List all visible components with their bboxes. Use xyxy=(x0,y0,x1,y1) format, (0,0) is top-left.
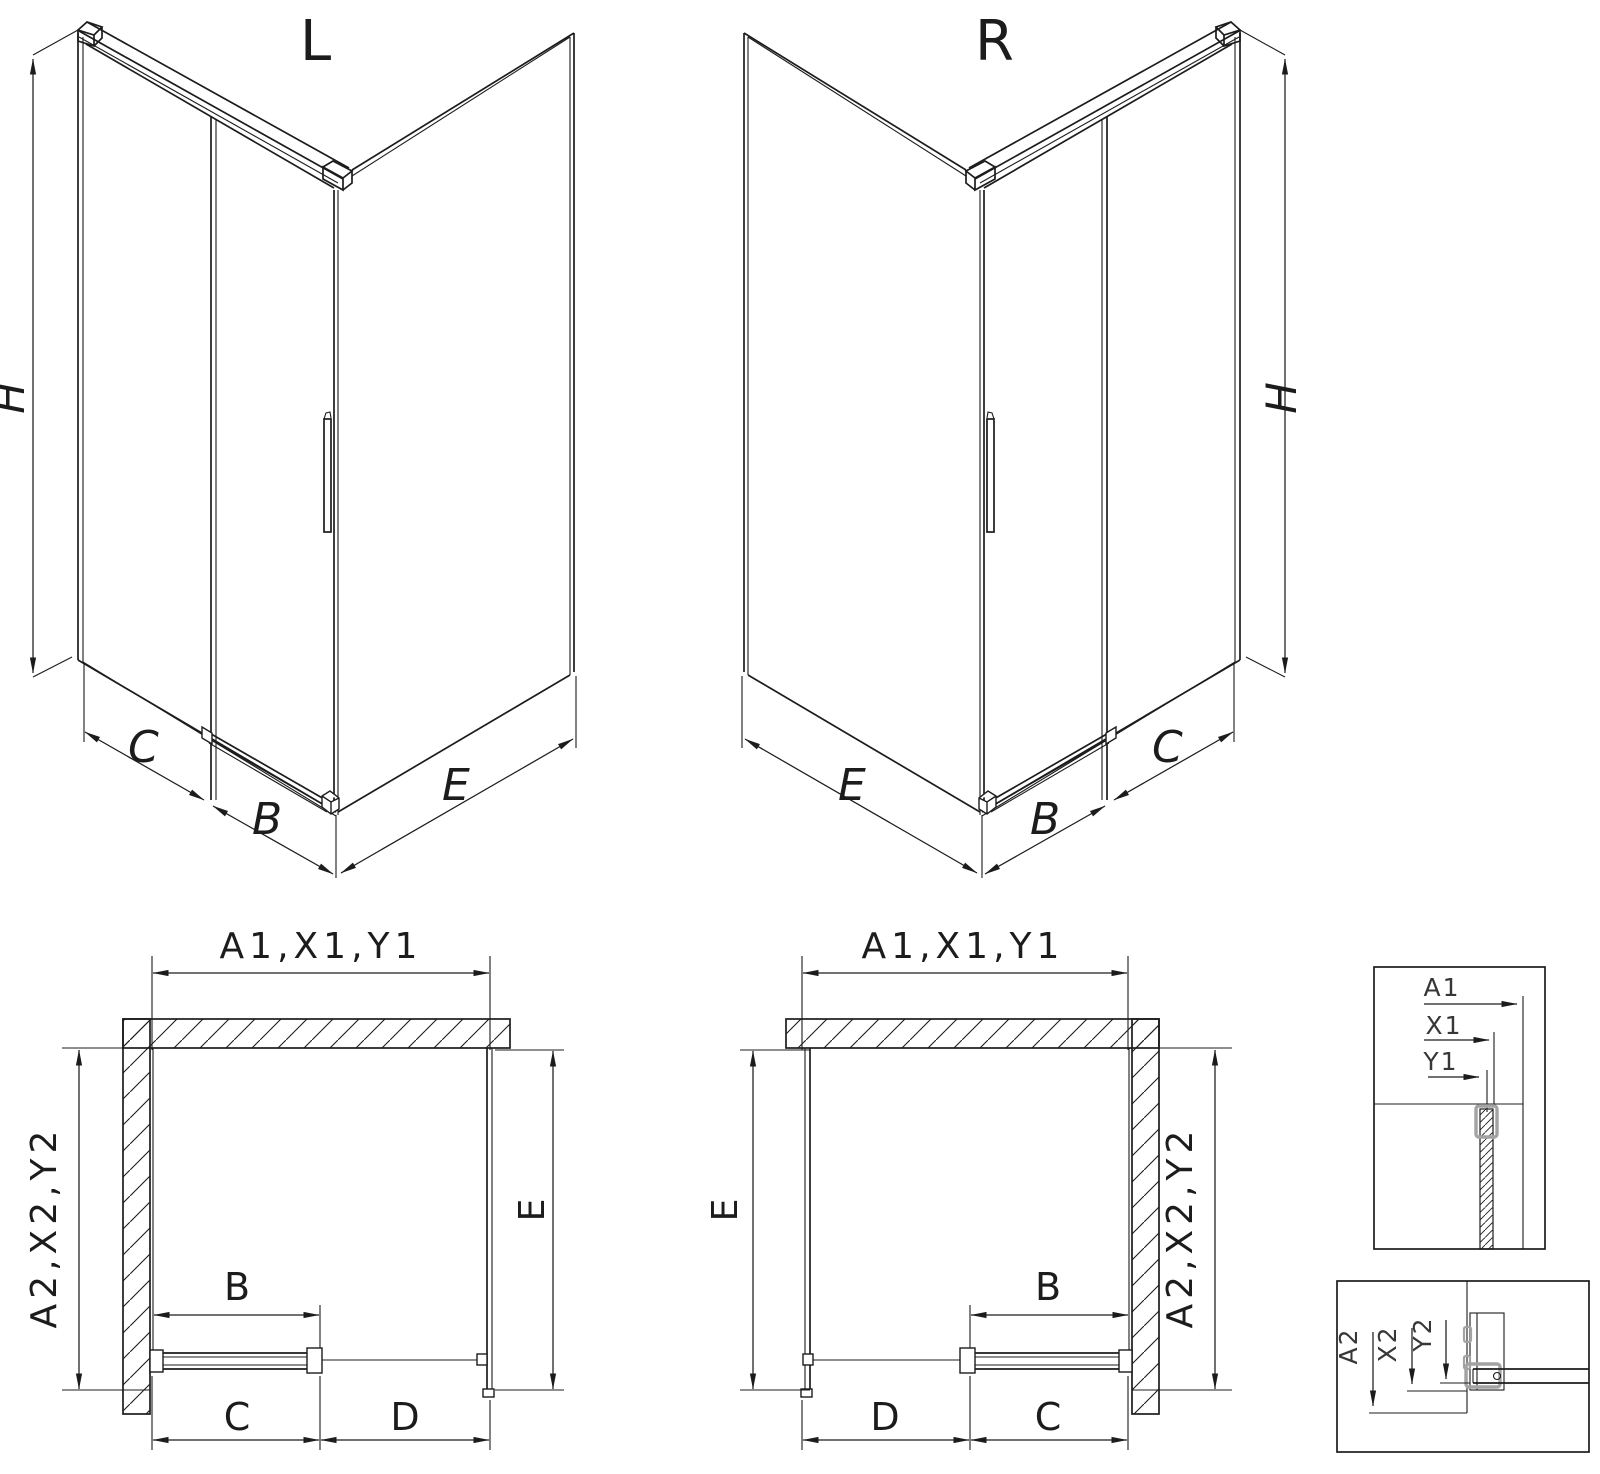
plan-left-width-dim: A1,X1,Y1 xyxy=(220,926,423,967)
side-dim-label-right: E xyxy=(838,760,866,811)
plan-right-side-wall xyxy=(1132,1019,1159,1414)
plan-left-side-wall xyxy=(123,1019,150,1414)
side-dim-label-left: E xyxy=(442,760,470,811)
diagram-canvas: L H C B E xyxy=(0,0,1600,1474)
plan-right-fixed-dim: C xyxy=(1035,1395,1062,1439)
plan-left-fixed-dim: C xyxy=(224,1395,251,1439)
height-dim-label-left: H xyxy=(0,382,34,414)
fixed-dim-label-right: C xyxy=(1152,722,1183,773)
detail-y1-label: Y1 xyxy=(1422,1047,1458,1076)
plan-left-top-wall xyxy=(123,1019,510,1048)
door-handle xyxy=(324,412,331,532)
plan-right-side-dim: E xyxy=(705,1199,746,1222)
plan-left-side-dim: E xyxy=(512,1199,553,1222)
iso-right-geometry xyxy=(742,22,1285,878)
plan-right-door-dim: B xyxy=(1035,1265,1061,1309)
plan-left-bottom-rail xyxy=(150,1348,487,1373)
variant-label-left: L xyxy=(300,9,331,74)
detail-x1-label: X1 xyxy=(1425,1011,1462,1040)
iso-left-geometry xyxy=(33,22,576,878)
door-handle xyxy=(987,412,994,532)
plan-right-figure: A1,X1,Y1 E A2,X2,Y2 B xyxy=(705,926,1232,1450)
height-dim-label-right: H xyxy=(1257,382,1306,414)
plan-left-figure: A1,X1,Y1 E A2,X2,Y2 B xyxy=(24,926,564,1450)
plan-right-bottom-rail xyxy=(803,1348,1132,1373)
door-dim-label-right: B xyxy=(1030,794,1060,845)
iso-left-figure: L H C B E xyxy=(0,9,576,878)
detail-a2-label: A2 xyxy=(1334,1327,1363,1364)
detail-width-figure: A1 X1 Y1 xyxy=(1374,967,1545,1249)
door-dim-label-left: B xyxy=(252,794,282,845)
plan-left-door-dim: B xyxy=(224,1265,250,1309)
plan-right-width-dim: A1,X1,Y1 xyxy=(862,926,1065,967)
detail-wall-section xyxy=(1480,1109,1493,1249)
detail-x2-label: X2 xyxy=(1373,1325,1402,1362)
detail-y2-label: Y2 xyxy=(1408,1316,1437,1352)
detail-depth-figure: A2 X2 Y2 xyxy=(1334,1281,1589,1452)
plan-right-depth-dim: A2,X2,Y2 xyxy=(1160,1126,1201,1329)
detail-a1-label: A1 xyxy=(1423,973,1460,1002)
plan-left-depth-dim: A2,X2,Y2 xyxy=(24,1126,65,1329)
iso-right-figure: R H E B C xyxy=(742,9,1306,878)
fixed-dim-label-left: C xyxy=(128,722,159,773)
variant-label-right: R xyxy=(975,9,1014,74)
plan-right-opening-dim: D xyxy=(870,1395,899,1439)
plan-right-top-wall xyxy=(786,1019,1159,1048)
plan-left-opening-dim: D xyxy=(390,1395,419,1439)
